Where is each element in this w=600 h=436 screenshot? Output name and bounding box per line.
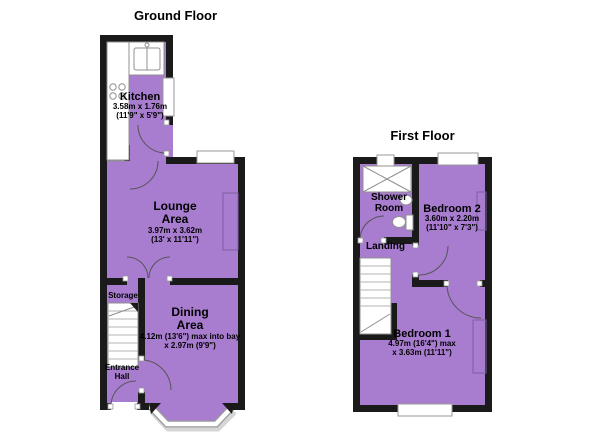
toilet-cistern	[406, 215, 413, 230]
door-jamb	[108, 404, 113, 409]
room-name: Area	[128, 319, 252, 332]
bedroom1-label: Bedroom 1 4.97m (16'4") max x 3.63m (11'…	[368, 328, 476, 358]
first-floor-stairs	[360, 258, 391, 334]
door-jamb	[135, 404, 140, 409]
door-jamb	[167, 276, 172, 281]
hob-ring-icon	[110, 84, 116, 90]
dining-label: Dining Area 4.12m (13'6") max into bay x…	[128, 306, 252, 351]
wall-segment	[353, 157, 360, 412]
room-name: Room	[363, 203, 415, 214]
entrance-hall-label: Entrance Hall	[101, 364, 143, 382]
bedroom1-window	[398, 404, 452, 416]
wall-segment	[412, 280, 448, 287]
wall-segment	[100, 35, 173, 42]
door-jamb	[477, 281, 482, 286]
room-dims-imperial: x 2.97m (9'9")	[128, 342, 252, 351]
room-name: Dining	[128, 306, 252, 319]
landing-label: Landing	[358, 241, 413, 252]
door-jamb	[164, 151, 169, 156]
bedroom2-window	[438, 153, 478, 165]
room-dims-imperial: (11'9" x 5'9")	[96, 112, 184, 121]
door-jamb	[444, 281, 449, 286]
front-door-opening	[111, 402, 137, 411]
toilet-bowl	[393, 217, 406, 228]
wall-segment	[166, 35, 173, 80]
floorplan: Ground Floor First Floor Kitchen 3.58m x…	[0, 0, 600, 436]
room-name: Shower	[363, 192, 415, 203]
room-dims-imperial: (13' x 11'11")	[125, 236, 225, 245]
door-jamb	[139, 388, 144, 393]
first-floor-title: First Floor	[353, 129, 492, 144]
hob-ring-icon	[119, 84, 125, 90]
ground-floor-title: Ground Floor	[98, 9, 253, 24]
wall-segment	[170, 278, 238, 285]
room-dims-imperial: x 3.63m (11'11")	[368, 349, 476, 358]
door-jamb	[123, 276, 128, 281]
door-jamb	[139, 356, 144, 361]
lounge-window	[197, 151, 234, 163]
storage-label: Storage	[104, 292, 142, 301]
room-name: Hall	[101, 373, 143, 382]
door-jamb	[413, 272, 418, 277]
floorplan-svg	[0, 0, 600, 436]
lounge-label: Lounge Area 3.97m x 3.62m (13' x 11'11")	[125, 200, 225, 245]
door-jamb	[413, 243, 418, 248]
wall-segment	[238, 157, 245, 410]
bedroom2-label: Bedroom 2 3.60m x 2.20m (11'10" x 7'3")	[414, 203, 490, 233]
shower-room-window	[377, 155, 394, 166]
kitchen-tap-icon	[145, 43, 149, 47]
room-dims-imperial: (11'10" x 7'3")	[414, 224, 490, 233]
room-name: Area	[125, 213, 225, 226]
shower-room-label: Shower Room	[363, 192, 415, 214]
room-name: Lounge	[125, 200, 225, 213]
kitchen-label: Kitchen 3.58m x 1.76m (11'9" x 5'9")	[96, 91, 184, 121]
